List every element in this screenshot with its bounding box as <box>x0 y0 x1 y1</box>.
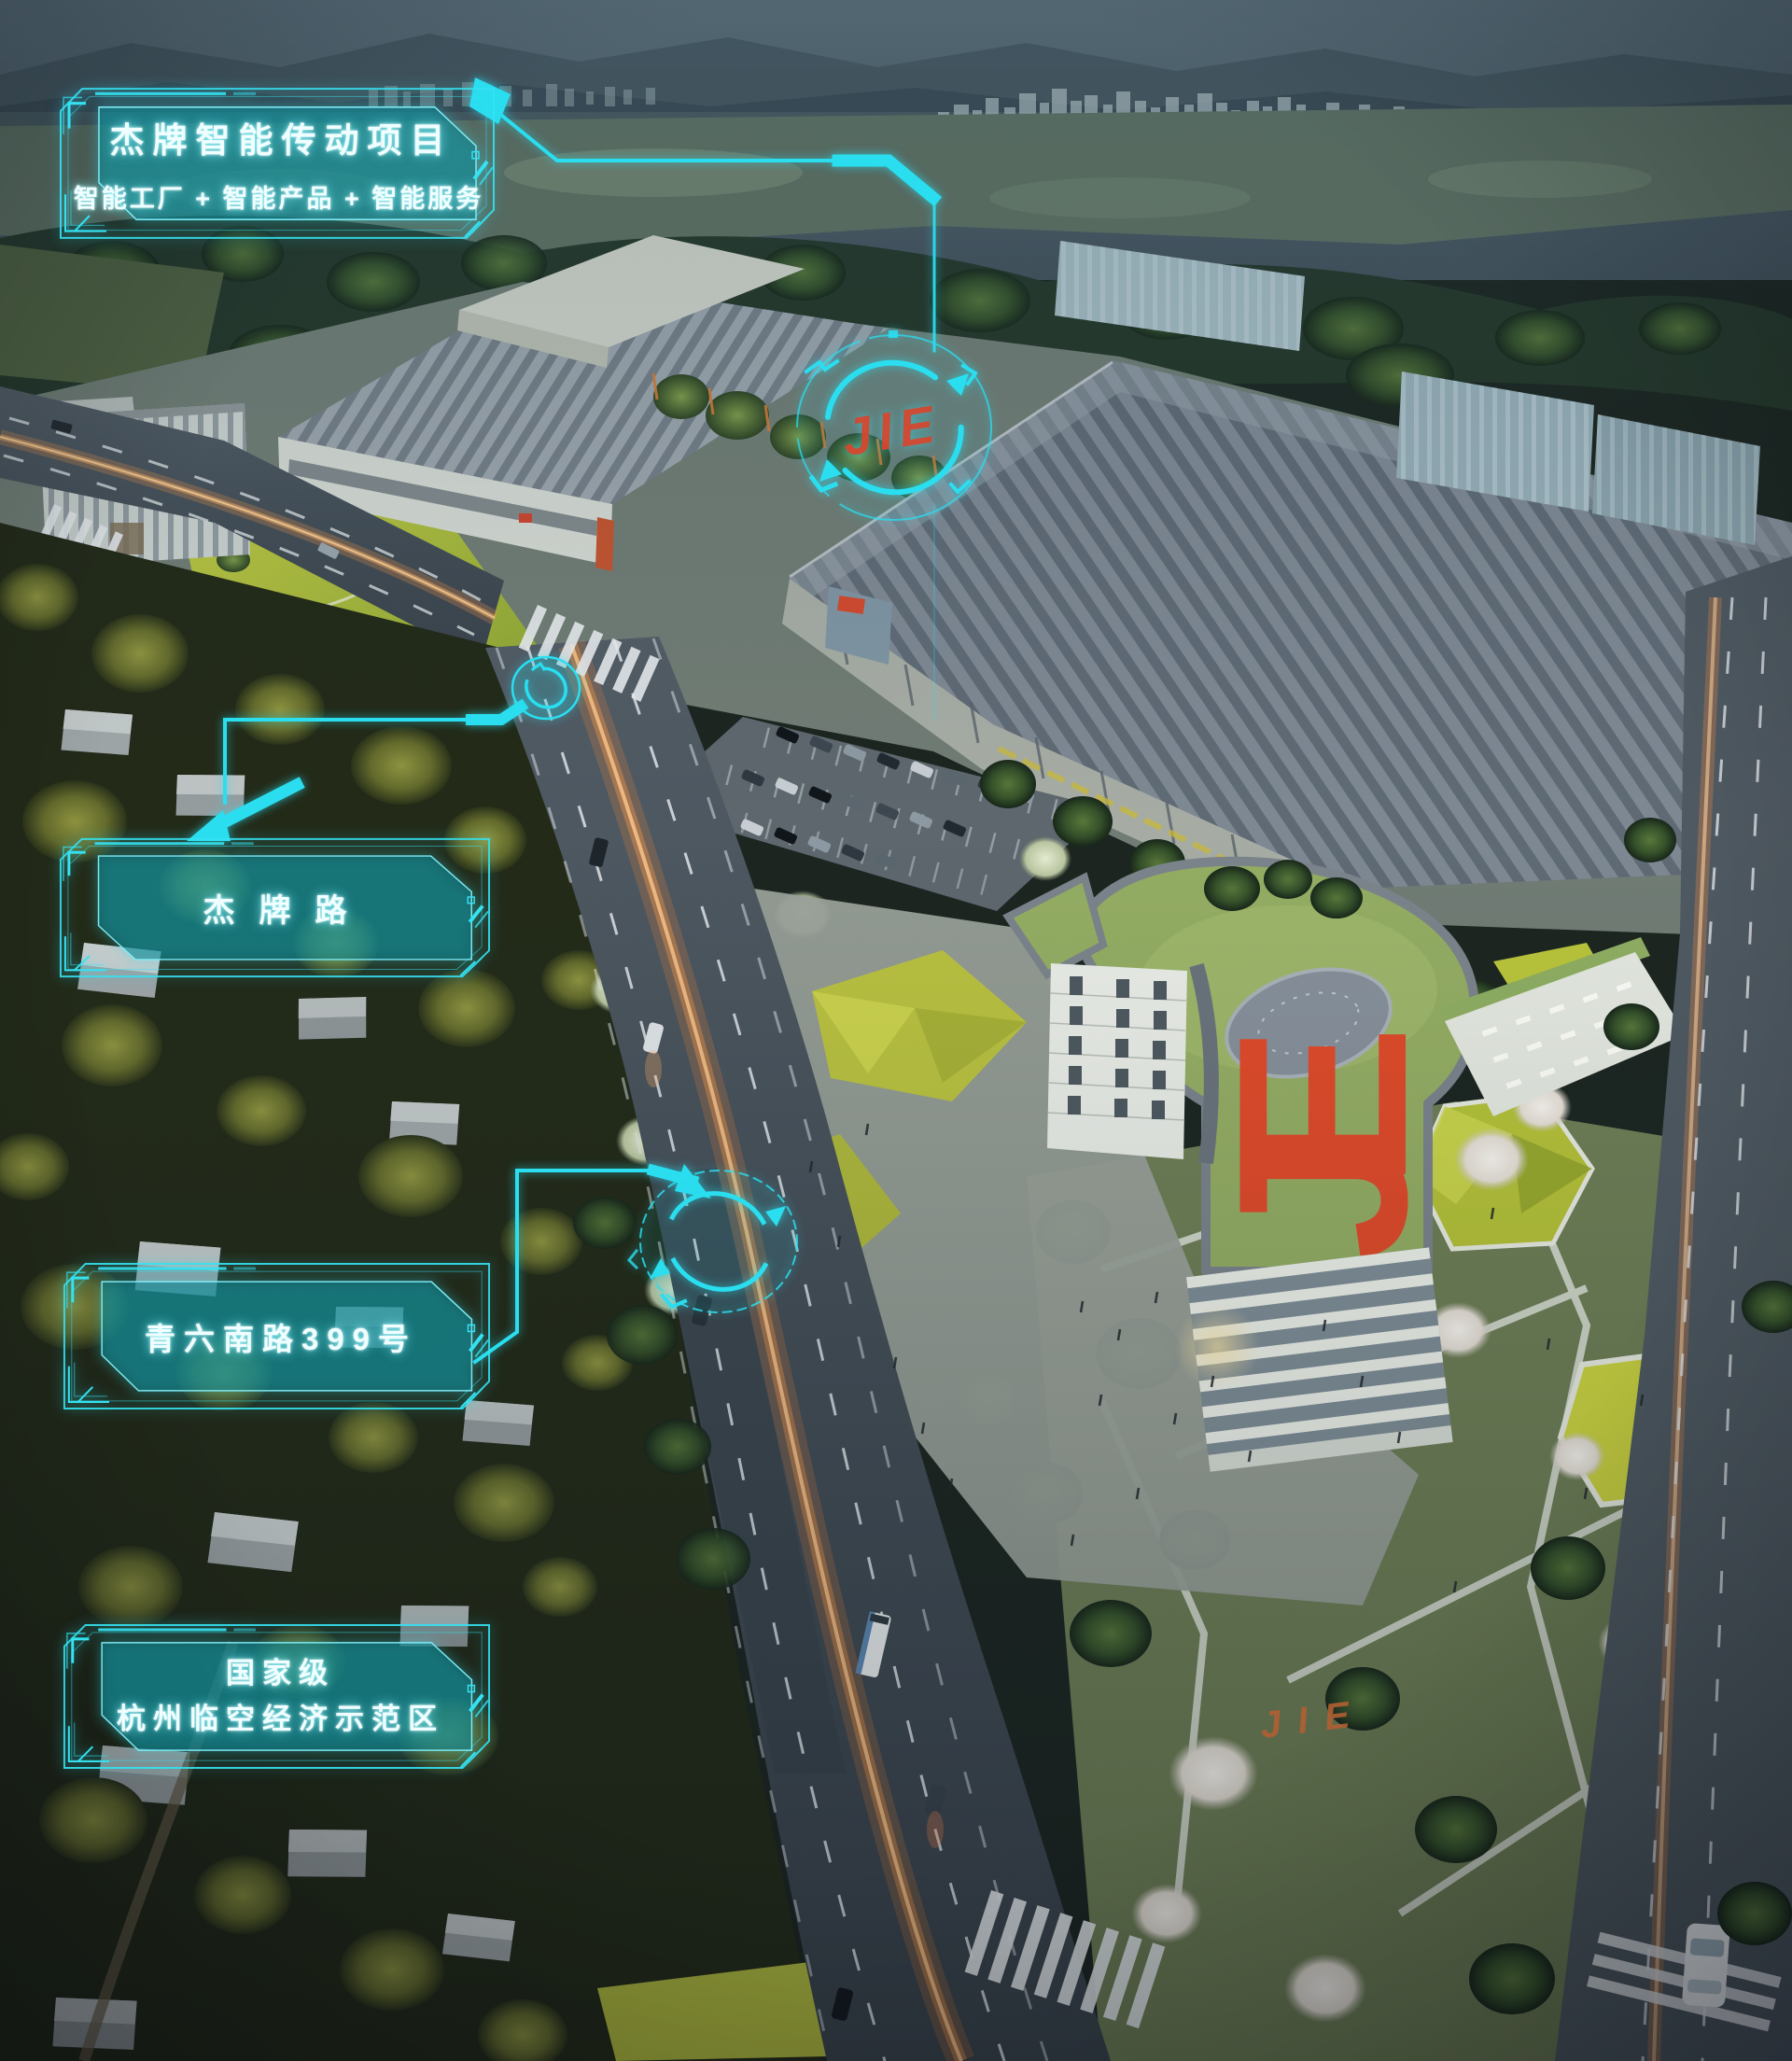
road-label: 杰牌路 <box>179 885 371 931</box>
callout-address: 青六南路399号 <box>62 1261 492 1411</box>
callout-zone: 国家级 杭州临空经济示范区 <box>62 1622 492 1771</box>
hq-lower-block <box>1166 1247 1452 1474</box>
callout-jiepai-road: 杰牌路 <box>58 836 492 979</box>
roof-logo: JIE <box>1187 1025 1457 1262</box>
project-title: 杰牌智能传动项目 <box>102 112 454 162</box>
zone-line1: 国家级 <box>218 1651 335 1696</box>
aerial-campus-render: JIE JIE <box>0 0 1792 2061</box>
project-subtitle: 智能工厂 + 智能产品 + 智能服务 <box>71 178 484 215</box>
address-label: 青六南路399号 <box>136 1314 417 1359</box>
callout-project: 杰牌智能传动项目 智能工厂 + 智能产品 + 智能服务 <box>58 86 497 241</box>
zone-line2: 杭州临空经济示范区 <box>109 1697 444 1742</box>
white-car <box>1682 1923 1730 2008</box>
